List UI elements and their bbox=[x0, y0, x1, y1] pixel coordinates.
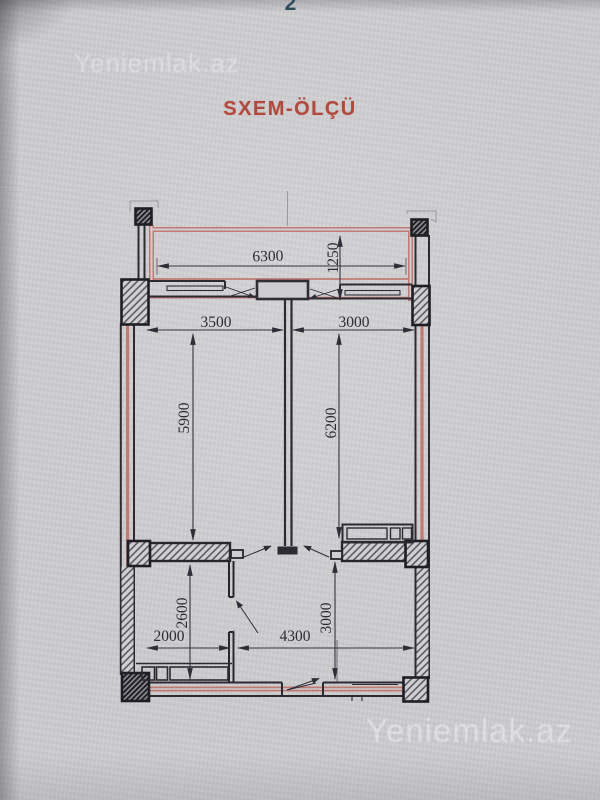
kitchen-counter bbox=[343, 525, 413, 543]
column-balcony-left bbox=[136, 209, 152, 225]
watermark-bottom-right: Yeniemlak.az bbox=[366, 712, 573, 750]
pencil-guide-lines bbox=[130, 191, 436, 226]
bathroom-fixtures bbox=[136, 664, 232, 681]
column-bottom-right bbox=[404, 678, 429, 702]
dim-balcony-depth-label: 1250 bbox=[325, 242, 342, 273]
dim-balcony-width-label: 6300 bbox=[252, 248, 284, 266]
dim-right-room-width-label: 3000 bbox=[339, 314, 370, 331]
door-right-room bbox=[304, 546, 329, 557]
exterior-wall-hatch bbox=[122, 566, 429, 677]
dim-bath-width-label: 2000 bbox=[154, 628, 185, 645]
column-mid-right bbox=[406, 541, 429, 567]
dimension-labels: 6300 1250 3500 3000 5900 6200 2600 3000 … bbox=[154, 242, 370, 645]
dim-hall-depth-label: 3000 bbox=[318, 602, 335, 633]
door-left-room bbox=[244, 546, 271, 557]
dim-left-room-width-label: 3500 bbox=[201, 314, 232, 331]
dim-bath-depth-label: 2600 bbox=[174, 597, 191, 628]
column-top-left bbox=[122, 280, 149, 325]
dim-hall-width-label: 4300 bbox=[280, 628, 311, 645]
scanned-page: { "page": { "page_number": "2", "title":… bbox=[0, 0, 600, 800]
doors bbox=[237, 546, 330, 690]
column-mid-left bbox=[128, 541, 150, 566]
window-top-left bbox=[167, 286, 223, 291]
column-top-right bbox=[413, 286, 430, 325]
column-balcony-right bbox=[412, 220, 428, 236]
door-bathroom bbox=[237, 601, 259, 633]
dim-right-room-depth-label: 6200 bbox=[323, 407, 340, 438]
balcony-door-frame bbox=[257, 281, 308, 299]
central-wall bbox=[278, 299, 298, 555]
column-bottom-left bbox=[122, 673, 149, 701]
floor-plan: 6300 1250 3500 3000 5900 6200 2600 3000 … bbox=[0, 0, 600, 800]
window-top-right bbox=[345, 291, 400, 296]
dim-left-room-depth-label: 5900 bbox=[176, 402, 193, 433]
